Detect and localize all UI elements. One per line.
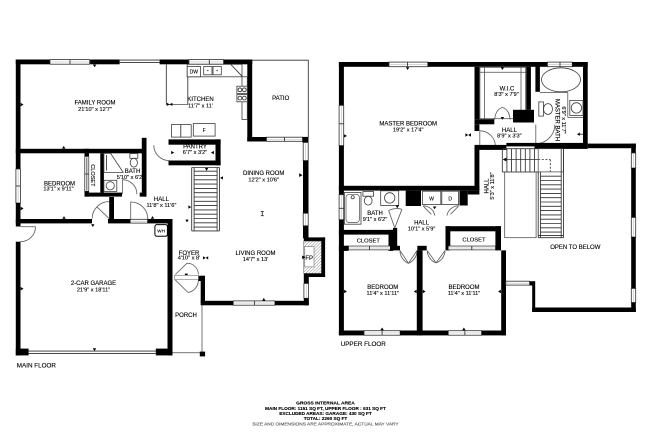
svg-text:WH: WH (157, 228, 165, 233)
svg-text:F: F (203, 128, 206, 134)
svg-text:CLOSET: CLOSET (462, 237, 486, 243)
svg-text:13'1" x 9'11": 13'1" x 9'11" (43, 187, 73, 193)
svg-text:2-CAR GARAGE: 2-CAR GARAGE (71, 281, 116, 287)
svg-text:PORCH: PORCH (175, 313, 197, 319)
svg-text:9'1" x 6'2": 9'1" x 6'2" (363, 217, 387, 223)
svg-text:11'8" x 11'6": 11'8" x 11'6" (146, 203, 176, 209)
svg-text:8'9" x 3'3": 8'9" x 3'3" (497, 133, 521, 139)
svg-text:11'4" x 11'11": 11'4" x 11'11" (367, 291, 400, 297)
svg-text:14'7" x 13': 14'7" x 13' (243, 257, 269, 263)
svg-text:DINING ROOM: DINING ROOM (243, 171, 284, 177)
svg-text:12'2" x 10'6": 12'2" x 10'6" (248, 178, 279, 184)
svg-text:BATH: BATH (125, 169, 141, 175)
svg-text:PATIO: PATIO (272, 96, 289, 102)
svg-text:21'9" x 18'11": 21'9" x 18'11" (77, 287, 110, 293)
svg-text:CLOSET: CLOSET (89, 164, 95, 187)
svg-text:UPPER FLOOR: UPPER FLOOR (341, 341, 387, 348)
svg-text:6'7" x 3'2": 6'7" x 3'2" (183, 150, 207, 156)
svg-text:10'1" x 5'9": 10'1" x 5'9" (408, 227, 436, 233)
svg-text:19'2" x 17'4": 19'2" x 17'4" (393, 127, 424, 133)
svg-text:FAMILY ROOM: FAMILY ROOM (74, 101, 115, 107)
svg-text:11'7" x 11': 11'7" x 11' (188, 103, 213, 109)
svg-text:FP: FP (305, 256, 313, 262)
svg-text:DW: DW (190, 70, 199, 76)
svg-text:21'10" x 12'7": 21'10" x 12'7" (78, 107, 112, 113)
svg-text:TOTAL: 2260 SQ FT: TOTAL: 2260 SQ FT (304, 416, 348, 421)
svg-text:MAIN FLOOR: MAIN FLOOR (17, 362, 57, 369)
svg-text:W: W (429, 196, 434, 202)
svg-text:OPEN TO BELOW: OPEN TO BELOW (550, 245, 600, 251)
svg-text:11'4" x 11'11": 11'4" x 11'11" (448, 291, 481, 297)
svg-text:CLOSET: CLOSET (357, 239, 381, 245)
svg-text:5'10" x 6'2": 5'10" x 6'2" (117, 175, 145, 181)
svg-text:SIZE AND DIMENSIONS ARE APPROX: SIZE AND DIMENSIONS ARE APPROXIMATE, ACT… (252, 422, 399, 428)
svg-text:8'3" x 7'9": 8'3" x 7'9" (494, 92, 518, 98)
svg-text:6'9" x 11'7": 6'9" x 11'7" (560, 106, 566, 133)
svg-text:4'10" x 8': 4'10" x 8' (178, 255, 200, 261)
svg-text:5'3" x 11'8": 5'3" x 11'8" (490, 172, 496, 199)
svg-text:KITCHEN: KITCHEN (187, 97, 213, 103)
svg-text:D: D (448, 196, 452, 202)
svg-text:HALL: HALL (154, 197, 170, 203)
svg-text:MASTER BATH: MASTER BATH (554, 99, 560, 141)
